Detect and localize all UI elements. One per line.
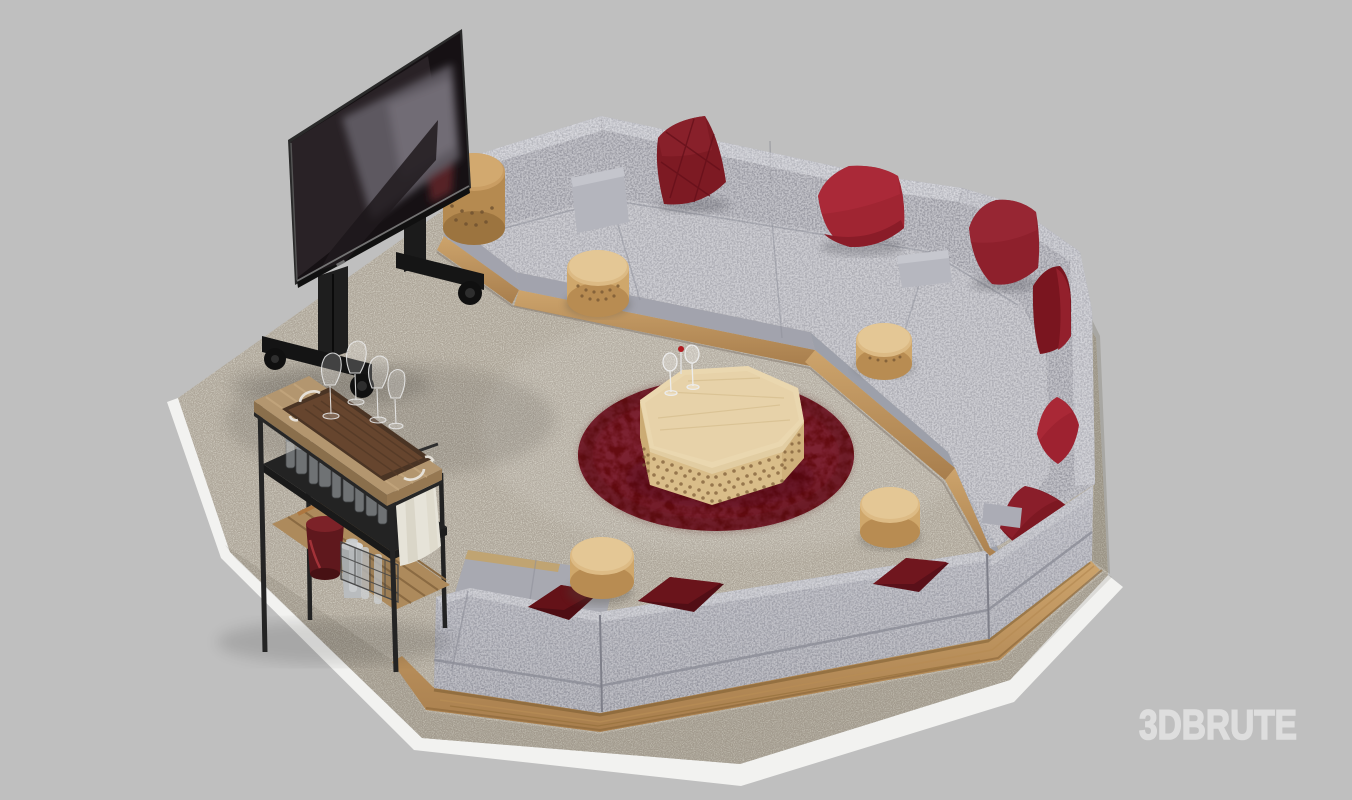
- svg-text:3DBRUTE: 3DBRUTE: [1139, 701, 1297, 748]
